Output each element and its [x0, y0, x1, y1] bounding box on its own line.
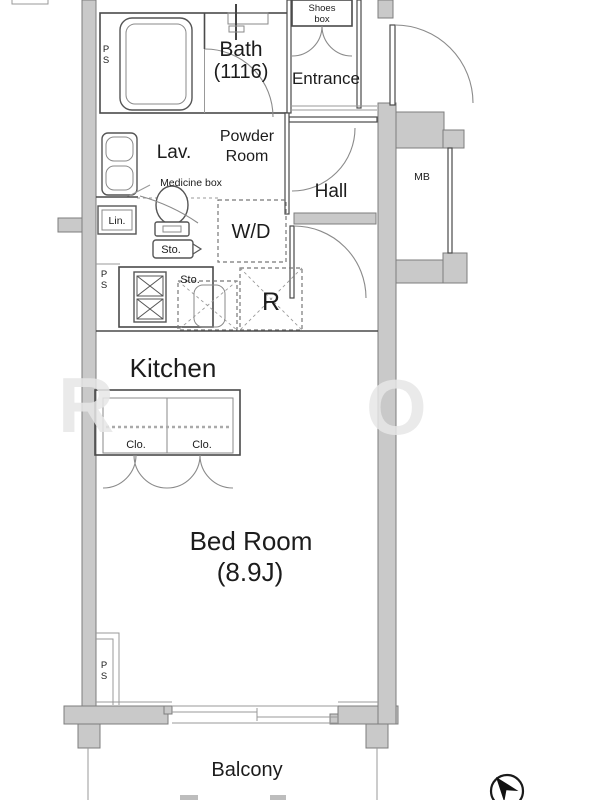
closet-door-arc-2	[134, 455, 167, 488]
mb-area: MB	[396, 112, 467, 283]
storage-tag-arrow	[193, 244, 201, 254]
closet-area: Clo. Clo.	[95, 390, 240, 488]
powder-room-label-line1: Powder	[220, 128, 275, 145]
balcony-pier-right	[366, 724, 388, 748]
mb-right-wall	[448, 148, 452, 253]
entrance-label: Entrance	[292, 69, 360, 88]
floor-plan: MB Bath (1116) P S Shoes box Entrance	[0, 0, 600, 800]
shoes-box-label-line2: box	[314, 14, 330, 25]
sto-powder-label: Sto.	[161, 244, 181, 256]
watermark-right-letter: O	[366, 363, 427, 451]
right-wall-top-piece	[378, 0, 393, 18]
bottom-wall-left-step	[164, 706, 172, 714]
sto-kitchen-label: Sto.	[180, 274, 200, 286]
kitchen-storage-diagonal2	[178, 281, 237, 330]
ps-bottom-label-line2: S	[101, 671, 107, 682]
compass	[489, 771, 523, 800]
cutoff-text-fragment-2	[270, 795, 286, 800]
lin-label: Lin.	[109, 215, 126, 227]
bath-room: Bath (1116) P S	[100, 4, 288, 117]
hall-bottom-wall	[294, 213, 376, 224]
entrance-door-leaf	[390, 25, 395, 105]
bedroom-size-label: (8.9J)	[217, 557, 283, 587]
mb-wall-bottom	[396, 260, 444, 283]
bedroom-area: Bed Room (8.9J) P S	[96, 526, 312, 705]
shoes-box-label-line1: Shoes	[309, 3, 336, 14]
refrigerator-label: R	[262, 288, 280, 316]
powder-room-label-line2: Room	[226, 148, 269, 165]
entrance-door-arc	[395, 25, 473, 103]
ps-mid-label-line1: P	[101, 269, 107, 280]
balcony-label: Balcony	[211, 759, 282, 781]
toilet-tank	[155, 222, 189, 236]
entrance-right-wall	[357, 0, 361, 108]
ps-bottom-box-outer	[96, 633, 119, 705]
watermark: R O	[58, 361, 427, 451]
stove	[134, 272, 166, 322]
lav-label: Lav.	[157, 142, 192, 163]
ps-mid-label-line2: S	[101, 280, 107, 291]
powder-room: Lav. Powder Room Medicine box Lin. Sto. …	[96, 128, 286, 262]
wd-label: W/D	[232, 221, 271, 243]
bedroom-label: Bed Room	[190, 526, 313, 556]
left-wall-stub	[58, 218, 82, 232]
closet-door-arc-1	[103, 455, 136, 488]
clo-left-label: Clo.	[126, 439, 146, 451]
hall-top-wall	[289, 117, 377, 122]
ps-top-label-line1: P	[103, 44, 109, 55]
mb-wall-top-block	[443, 130, 464, 148]
entrance-left-wall	[287, 0, 291, 113]
bath-shelf	[228, 13, 268, 24]
cutoff-text-fragment-1	[180, 795, 198, 800]
hall-lower-door-arc	[294, 226, 366, 298]
hall-lower-door-leaf	[290, 226, 294, 298]
kitchen-label: Kitchen	[130, 353, 217, 383]
bathtub	[120, 18, 192, 110]
medicine-box-label: Medicine box	[160, 177, 223, 189]
kitchen-area: P S Sto. R Kitchen	[96, 264, 378, 383]
floor-plan-drawing: MB Bath (1116) P S Shoes box Entrance	[0, 0, 600, 800]
kitchen-storage-unit	[194, 285, 225, 327]
balcony-pier-left	[78, 724, 100, 748]
powder-hall-wall	[285, 113, 289, 214]
hall-label: Hall	[315, 181, 348, 202]
mb-label: MB	[414, 171, 430, 183]
closet-door-arc-3	[167, 455, 200, 488]
bath-size-label: (1116)	[214, 61, 269, 83]
ps-top-label-line2: S	[103, 55, 109, 66]
watermark-left-letter: R	[58, 361, 114, 449]
shoes-box-door-arc-right	[322, 26, 352, 56]
bottom-wall-left	[64, 706, 168, 724]
closet-inner	[103, 398, 233, 453]
mb-wall-bottom-block	[443, 253, 467, 283]
clo-right-label: Clo.	[192, 439, 212, 451]
shoes-box-door-arc-left	[292, 26, 322, 56]
toilet-bowl	[156, 186, 188, 224]
bath-label: Bath	[219, 38, 262, 61]
mb-wall-top	[396, 112, 444, 148]
left-wall	[82, 0, 96, 708]
top-left-wall-fragment	[12, 0, 48, 4]
closet-door-arc-4	[200, 455, 233, 488]
hall-area: Hall	[285, 113, 377, 298]
ps-bottom-label-line1: P	[101, 660, 107, 671]
